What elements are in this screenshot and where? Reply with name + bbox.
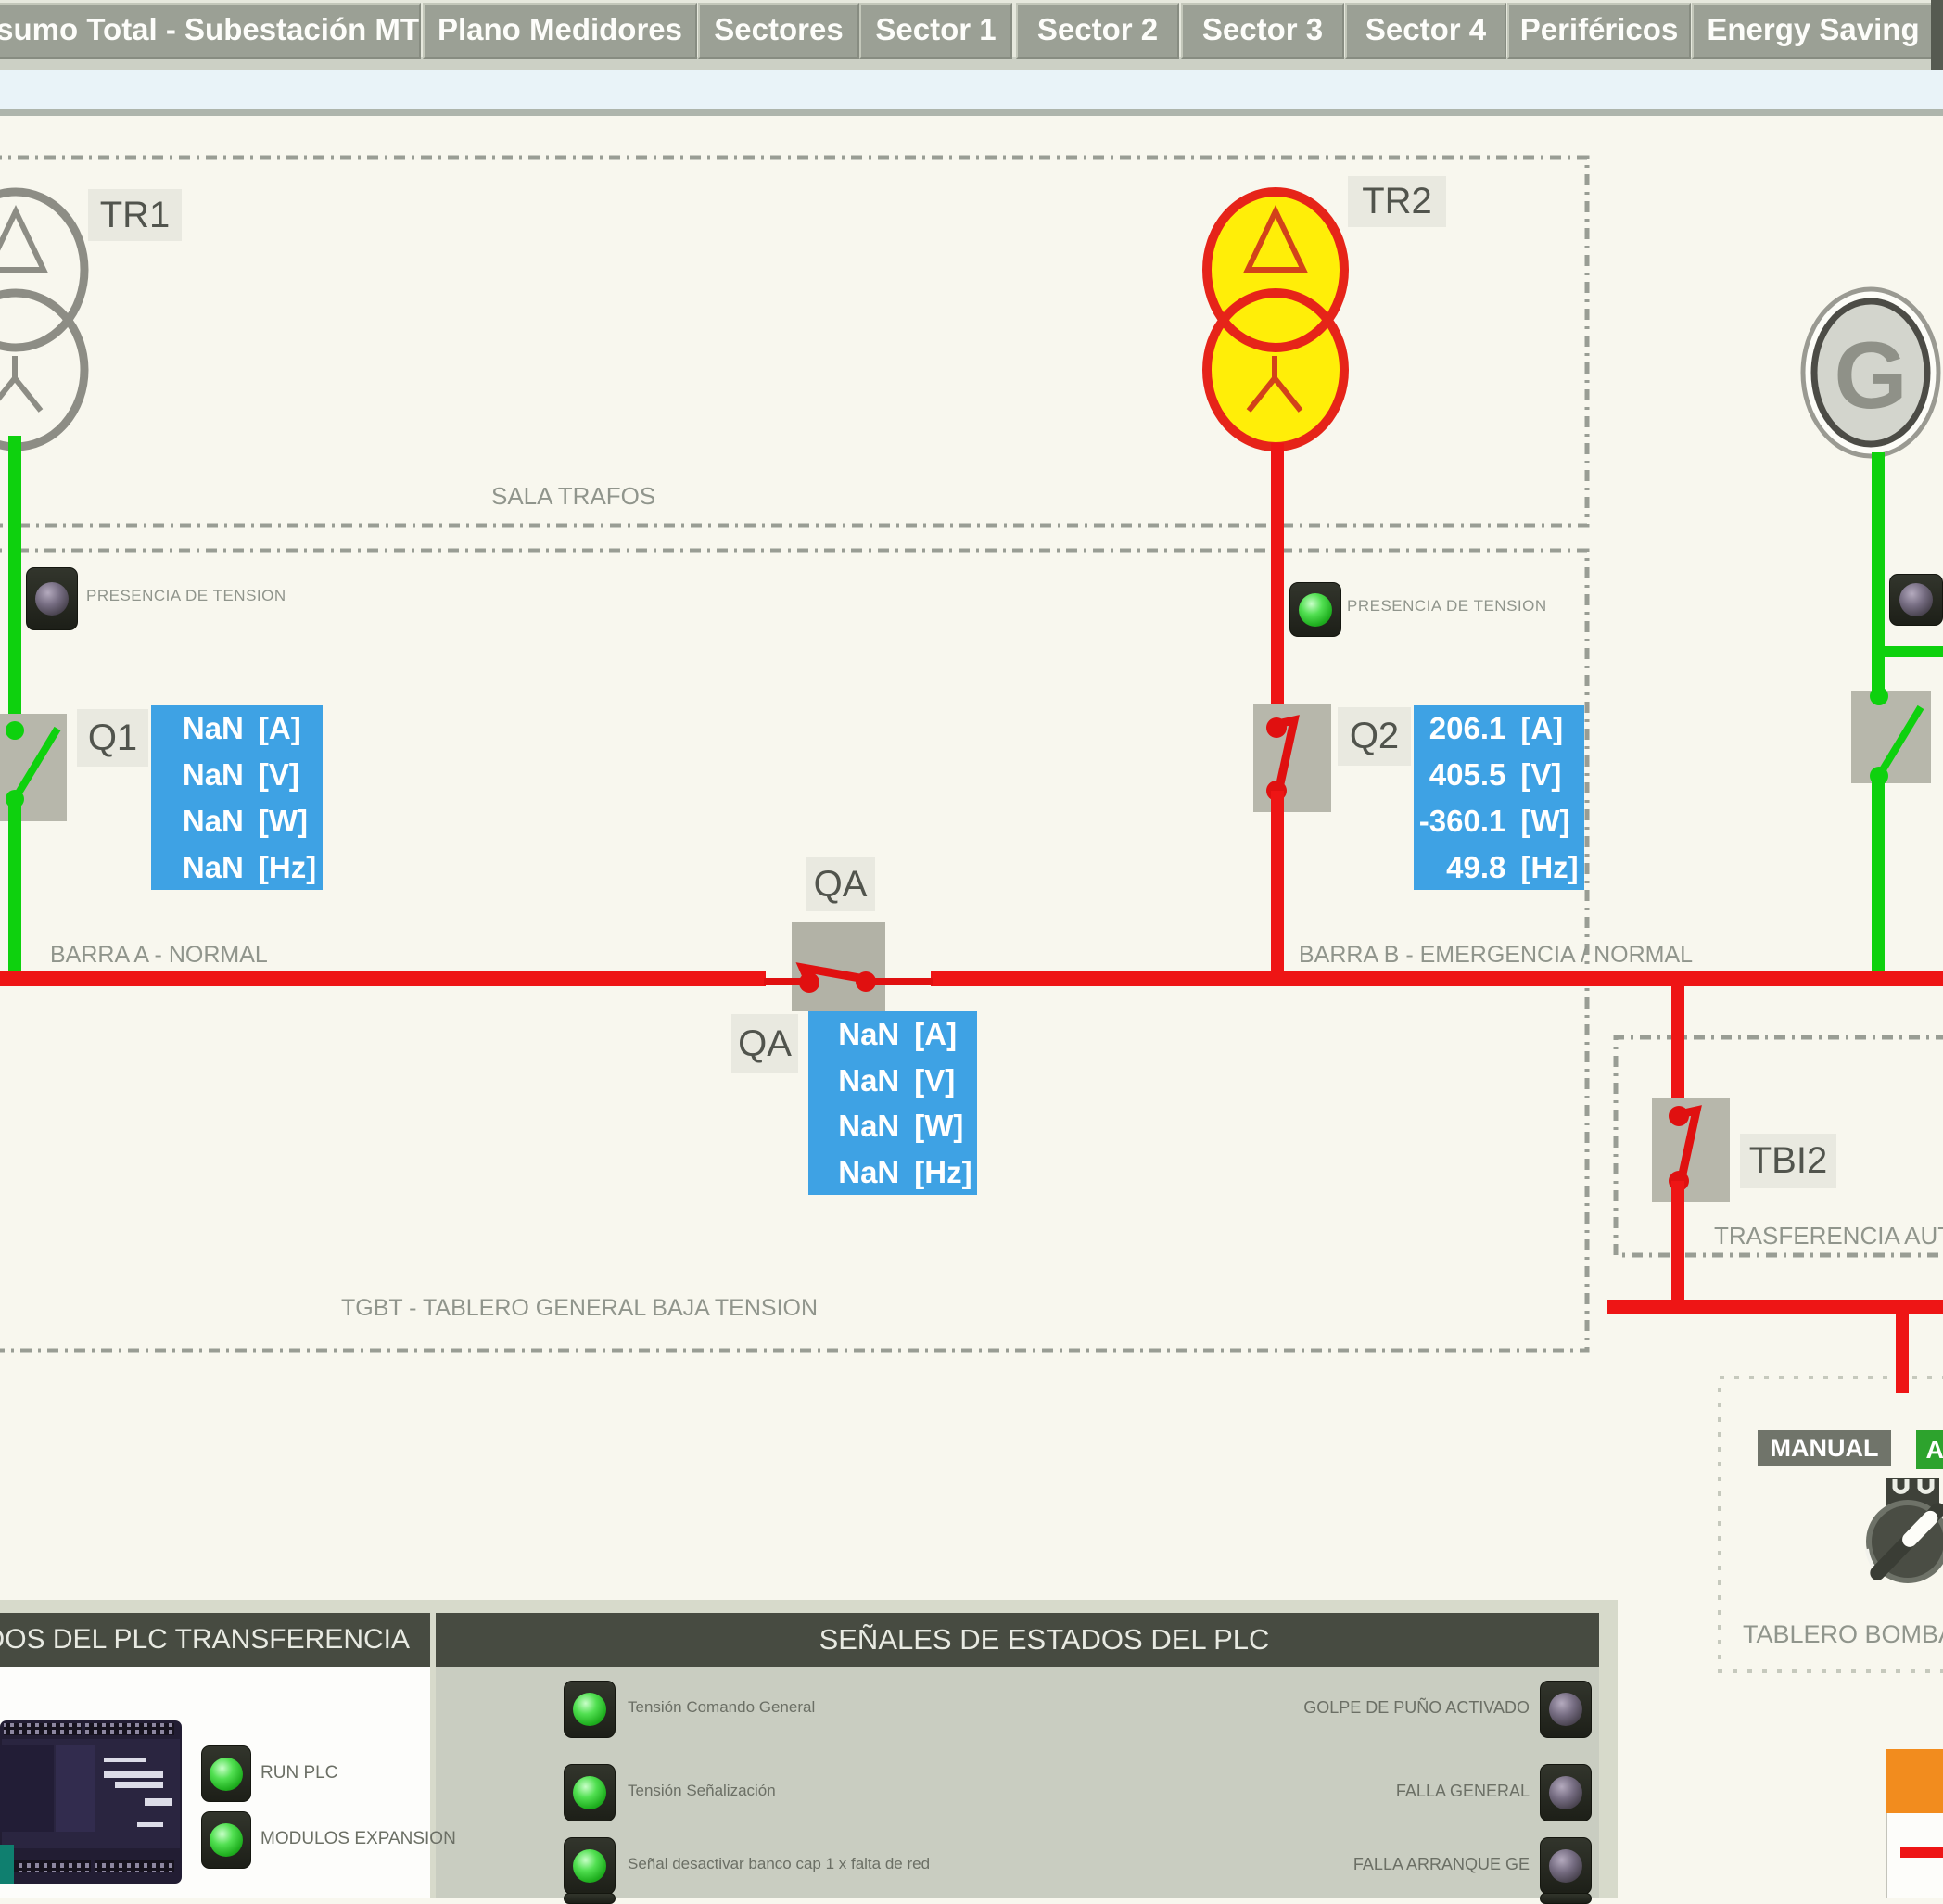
svg-text:G: G [1834,323,1907,428]
